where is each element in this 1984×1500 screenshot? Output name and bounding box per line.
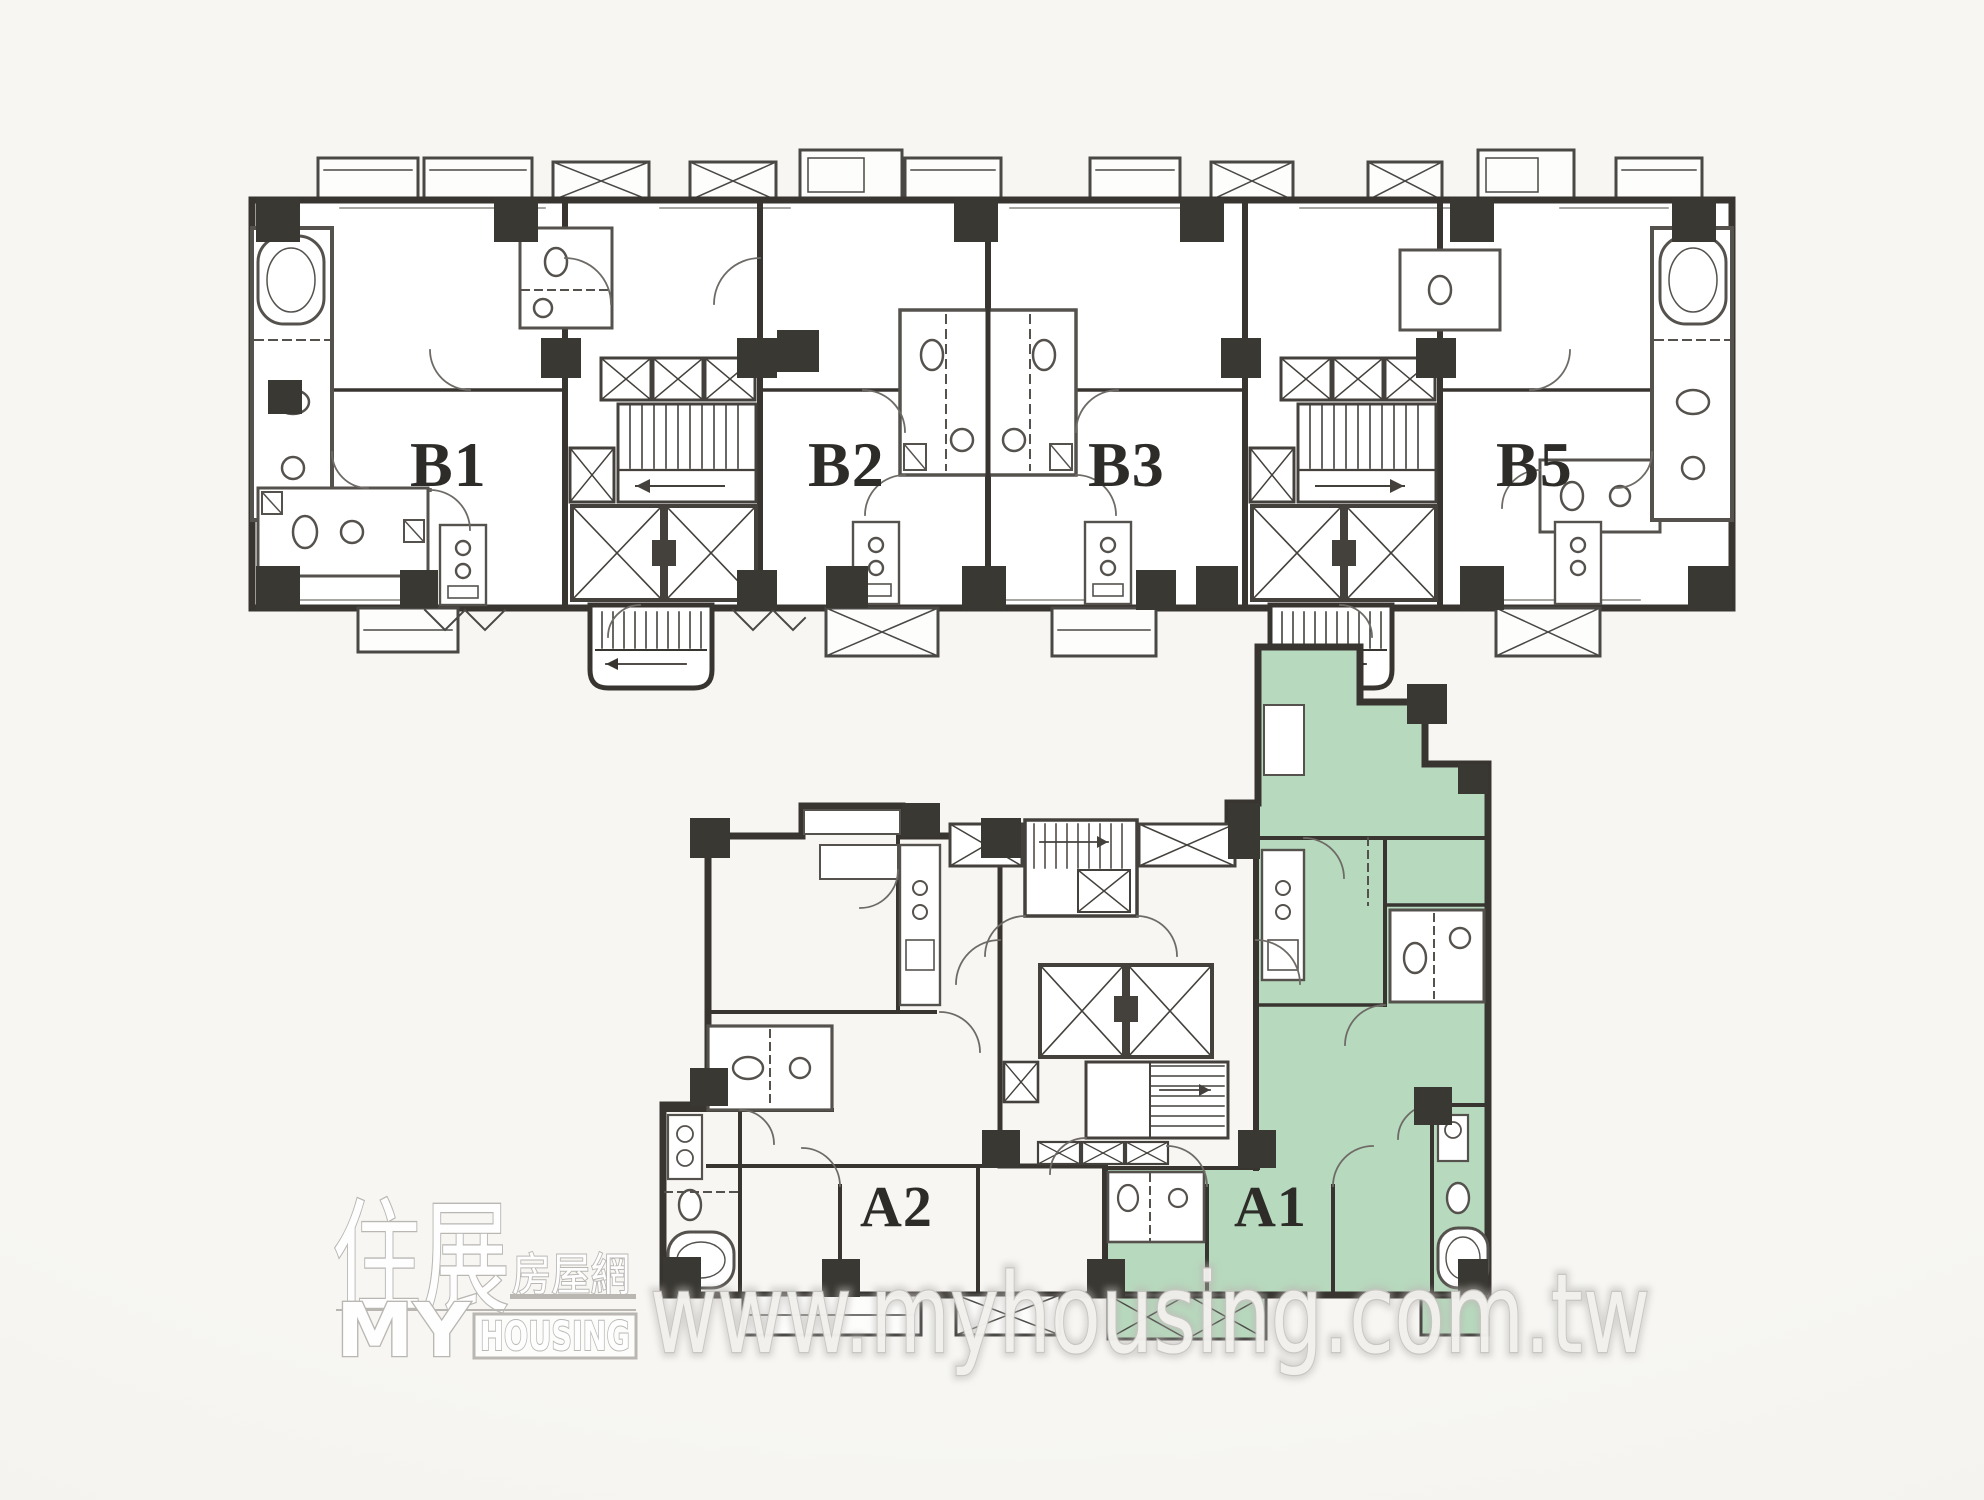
upper-roofline-balconies <box>318 150 1702 200</box>
toilet <box>733 1057 763 1079</box>
upper-building: B1 B2 B3 B5 <box>252 150 1732 688</box>
toilet <box>1429 276 1451 304</box>
url-watermark-text: www.myhousing.com.tw <box>650 1250 1650 1378</box>
unit-label-b3: B3 <box>1088 429 1165 500</box>
elevator <box>572 506 662 600</box>
sink <box>1610 486 1630 506</box>
sink <box>1450 928 1470 948</box>
sink <box>790 1058 810 1078</box>
toilet <box>1404 943 1426 973</box>
stairs <box>618 404 756 502</box>
toilet <box>1447 1183 1469 1213</box>
floorplan-page: B1 B2 B3 B5 <box>0 0 1984 1500</box>
unit-label-b5: B5 <box>1496 429 1573 500</box>
url-watermark: www.myhousing.com.tw www.myhousing.com.t… <box>650 1250 1650 1378</box>
toilet <box>1118 1185 1138 1211</box>
myhousing-logo: 住展 房屋網 MY HOUSING <box>332 1188 636 1374</box>
sink <box>1169 1189 1187 1207</box>
floorplan-canvas: B1 B2 B3 B5 <box>0 0 1984 1500</box>
sink <box>341 521 363 543</box>
toilet <box>921 340 943 370</box>
upper-bottom-balconies <box>358 608 1600 656</box>
toilet <box>1033 340 1055 370</box>
a1-bath-cluster <box>1108 1172 1204 1242</box>
elevator <box>1346 506 1436 600</box>
lower-core-stairs <box>1038 1062 1228 1164</box>
logo-english-my: MY <box>336 1288 471 1374</box>
unit-label-b2: B2 <box>808 429 885 500</box>
logo-english-housing: HOUSING <box>480 1314 630 1360</box>
sink <box>534 299 552 317</box>
sink <box>1682 457 1704 479</box>
central-bathrooms <box>900 310 1076 475</box>
sink <box>951 429 973 451</box>
logo-chinese-sub: 房屋網 <box>512 1248 630 1301</box>
b1-lower-bath <box>258 488 428 576</box>
b1-bathroom-wing <box>252 228 332 520</box>
unit-label-a1: A1 <box>1234 1174 1307 1239</box>
unit-label-b1: B1 <box>410 429 487 500</box>
logo-underline <box>510 1294 636 1299</box>
sawtooth-vent <box>733 610 805 630</box>
sink <box>1003 429 1025 451</box>
b1-upper-bath <box>520 228 612 328</box>
toilet <box>545 248 567 276</box>
toilet <box>679 1190 701 1220</box>
elevator <box>1252 506 1342 600</box>
toilet <box>1677 390 1709 414</box>
unit-label-a2: A2 <box>860 1174 933 1239</box>
stairs <box>1298 404 1436 502</box>
sink <box>282 457 304 479</box>
toilet <box>293 516 317 548</box>
lower-building: A2 A1 <box>663 647 1488 1339</box>
